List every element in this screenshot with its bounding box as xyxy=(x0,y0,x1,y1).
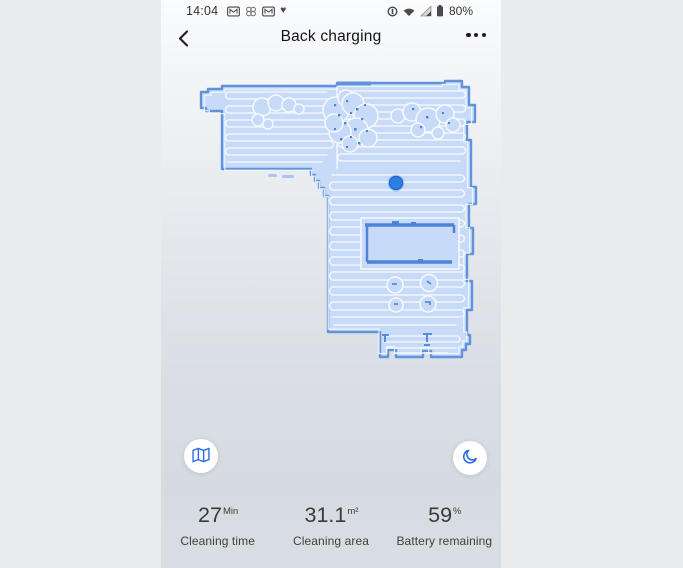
more-options-button[interactable] xyxy=(466,33,486,37)
stat-cleaning-time: 27Min Cleaning time xyxy=(161,503,274,548)
cleaning-map[interactable] xyxy=(198,78,478,362)
status-bar: 14:04 ♥ xyxy=(161,0,501,20)
battery-remaining-value: 59 xyxy=(428,503,452,527)
phone-screen: 14:04 ♥ xyxy=(161,0,501,568)
gmail-icon xyxy=(262,6,275,17)
heart-icon: ♥ xyxy=(280,6,286,16)
moon-icon xyxy=(462,448,479,468)
status-right-group: 80% xyxy=(387,4,473,18)
map-icon xyxy=(192,447,210,466)
cleaning-time-value: 27 xyxy=(198,503,222,527)
stat-battery-remaining: 59% Battery remaining xyxy=(388,503,501,548)
furniture-rectangle xyxy=(361,218,459,269)
map-wall-segment xyxy=(337,82,371,86)
app-screenshot: 14:04 ♥ xyxy=(0,0,683,568)
battery-icon xyxy=(436,5,444,17)
cleaning-time-label: Cleaning time xyxy=(161,534,274,548)
cleaning-time-unit: Min xyxy=(223,506,238,517)
battery-percent: 80% xyxy=(449,4,473,18)
clover-icon xyxy=(245,6,257,17)
cell-signal-icon xyxy=(420,6,432,17)
battery-remaining-label: Battery remaining xyxy=(388,534,501,548)
robot-position-dot xyxy=(388,175,405,192)
page-title: Back charging xyxy=(161,28,501,46)
wifi-icon xyxy=(402,6,416,17)
do-not-disturb-button[interactable] xyxy=(453,441,487,475)
battery-remaining-unit: % xyxy=(453,506,461,517)
nav-bar: Back charging xyxy=(161,24,501,56)
cleaning-area-label: Cleaning area xyxy=(274,534,387,548)
stats-row: 27Min Cleaning time 31.1m² Cleaning area… xyxy=(161,503,501,548)
data-saver-icon xyxy=(387,6,398,17)
stat-cleaning-area: 31.1m² Cleaning area xyxy=(274,503,387,548)
map-select-button[interactable] xyxy=(184,439,218,473)
cleaning-area-unit: m² xyxy=(347,506,358,517)
status-time: 14:04 xyxy=(186,4,218,18)
gmail-icon xyxy=(227,6,240,17)
cleaning-area-value: 31.1 xyxy=(305,503,347,527)
more-options-icon xyxy=(466,33,470,37)
